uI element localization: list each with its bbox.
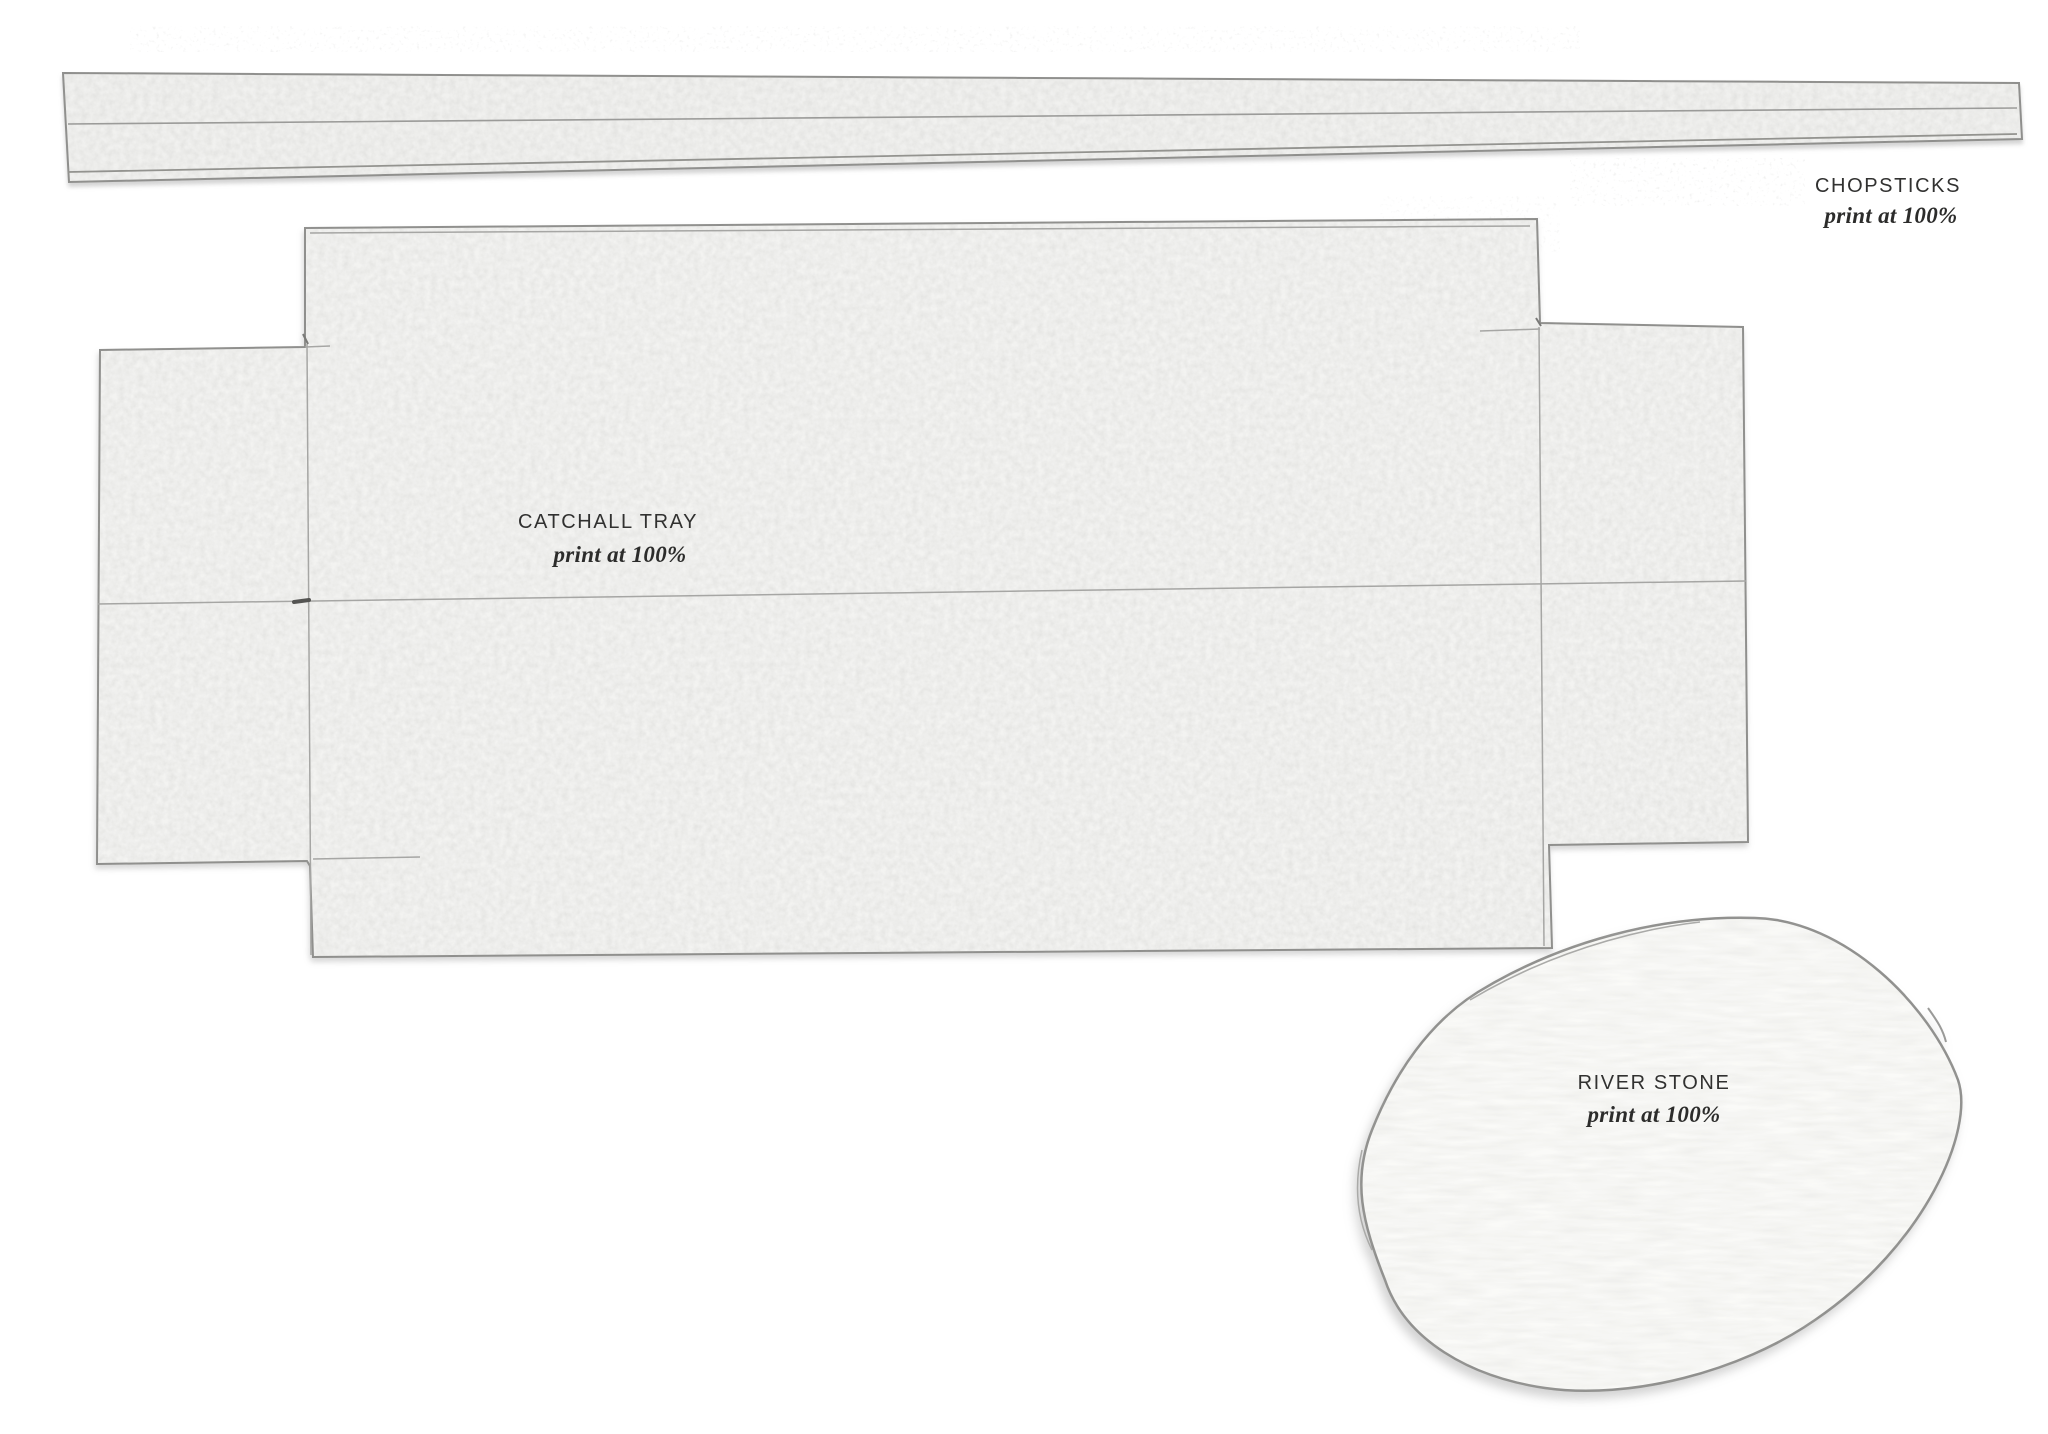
stone-outline	[1361, 918, 1961, 1391]
river-stone-label-title: RIVER STONE	[1578, 1072, 1731, 1095]
catchall-tray-print-instruction: print at 100%	[554, 542, 687, 568]
river-stone-template	[1357, 918, 1961, 1391]
template-shapes-canvas	[0, 0, 2048, 1434]
chopsticks-print-instruction: print at 100%	[1825, 203, 1958, 229]
river-stone-print-instruction: print at 100%	[1588, 1102, 1721, 1128]
catchall-tray-template	[97, 219, 1748, 957]
scanned-template-page: CHOPSTICKS print at 100% CATCHALL TRAY p…	[0, 0, 2048, 1434]
tray-fold-junction-mark	[294, 600, 309, 602]
chopsticks-label-title: CHOPSTICKS	[1815, 175, 1961, 198]
catchall-tray-label-title: CATCHALL TRAY	[518, 511, 698, 534]
tray-pencil-overshoot-top	[305, 346, 330, 347]
